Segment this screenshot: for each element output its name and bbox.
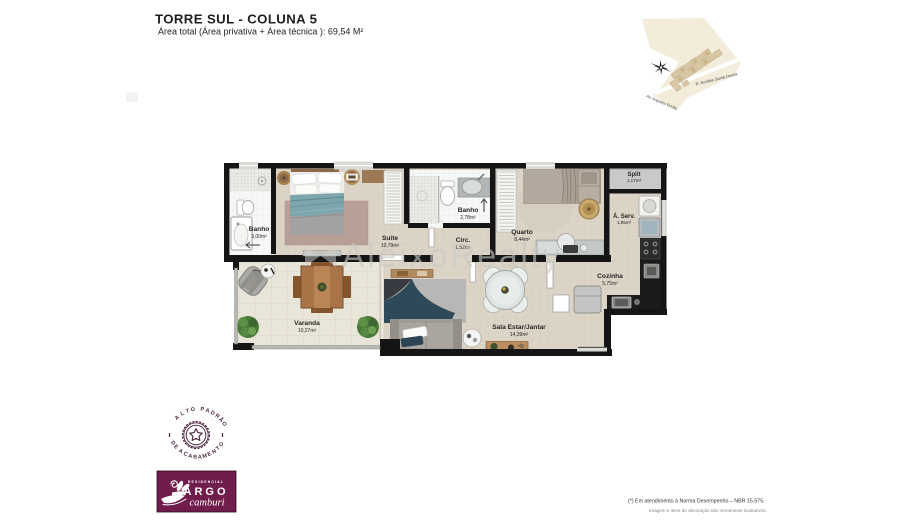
svg-text:Sala Estar/Jantar: Sala Estar/Jantar xyxy=(492,324,546,331)
svg-text:Banho: Banho xyxy=(458,207,479,214)
svg-text:Á. Serv.: Á. Serv. xyxy=(613,213,635,220)
svg-text:2,78m²: 2,78m² xyxy=(460,215,476,221)
svg-text:Cozinha: Cozinha xyxy=(597,273,623,280)
svg-text:RESIDENCIAL: RESIDENCIAL xyxy=(188,480,224,484)
svg-text:Varanda: Varanda xyxy=(294,320,320,327)
svg-text:AleixoRealty: AleixoRealty xyxy=(342,237,562,275)
svg-text:3,00m²: 3,00m² xyxy=(251,234,267,240)
svg-text:10,27m²: 10,27m² xyxy=(298,328,317,334)
svg-text:TORRE SUL - COLUNA 5: TORRE SUL - COLUNA 5 xyxy=(155,12,317,27)
svg-text:1,95m²: 1,95m² xyxy=(617,220,632,225)
svg-text:5,75m²: 5,75m² xyxy=(602,281,618,287)
svg-text:camburi: camburi xyxy=(190,498,225,509)
svg-text:1,17m²: 1,17m² xyxy=(627,178,642,183)
svg-text:(*) Em atendimento à Norma Des: (*) Em atendimento à Norma Desempenho – … xyxy=(628,499,765,505)
svg-text:Área total (Área privativa + Á: Área total (Área privativa + Área técnic… xyxy=(158,27,363,37)
svg-text:Quarto: Quarto xyxy=(511,229,533,236)
svg-text:Banho: Banho xyxy=(249,226,270,233)
svg-text:14,39m²: 14,39m² xyxy=(510,332,529,338)
svg-text:Imagem e itens de decoração sã: Imagem e itens de decoração são merament… xyxy=(649,508,767,513)
svg-text:B: B xyxy=(193,454,197,460)
svg-text:ARGO: ARGO xyxy=(184,486,229,498)
